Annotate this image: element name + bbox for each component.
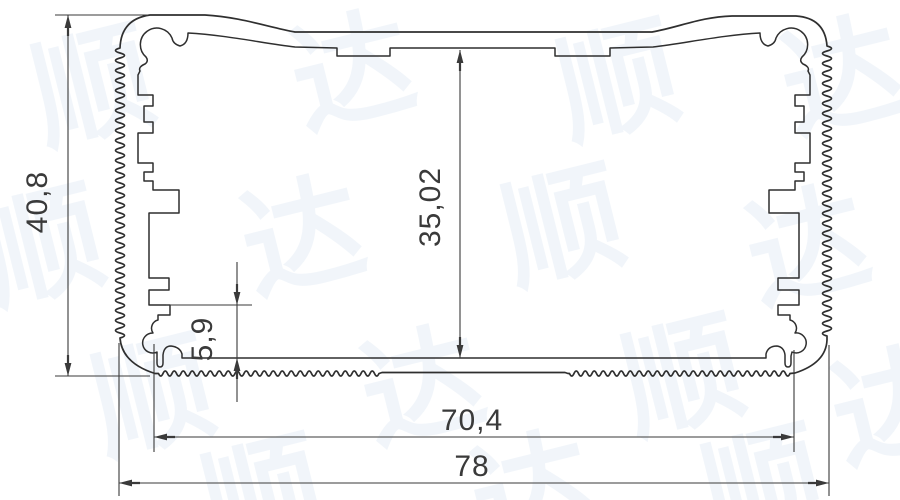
arrow-overall-width-right <box>808 480 829 487</box>
arrow-inner-width-left <box>154 434 175 441</box>
arrow-overall-height-bottom <box>65 355 72 376</box>
arrow-base-rail-top <box>234 284 241 305</box>
arrow-inner-height-bottom <box>457 337 464 358</box>
arrow-base-rail-bottom <box>234 358 241 379</box>
dim-label-inner-height: 35,02 <box>414 167 447 247</box>
technical-drawing: 40,8 35,02 5,9 70,4 78 <box>0 0 900 500</box>
drawing-canvas: 顺达顺达顺达顺达顺达顺达顺达顺 40,8 35,02 5,9 70,4 78 <box>0 0 900 500</box>
profile-outer-outline <box>116 15 832 376</box>
dim-label-inner-width: 70,4 <box>441 404 503 437</box>
arrow-inner-height-top <box>457 50 464 71</box>
profile-inner-outline <box>138 28 810 367</box>
dim-label-overall-width: 78 <box>454 450 489 483</box>
dim-label-overall-height: 40,8 <box>21 171 54 233</box>
arrow-inner-width-right <box>773 434 794 441</box>
arrow-overall-height-top <box>65 15 72 36</box>
dim-label-base-rail-height: 5,9 <box>186 317 219 362</box>
arrow-overall-width-left <box>119 480 140 487</box>
